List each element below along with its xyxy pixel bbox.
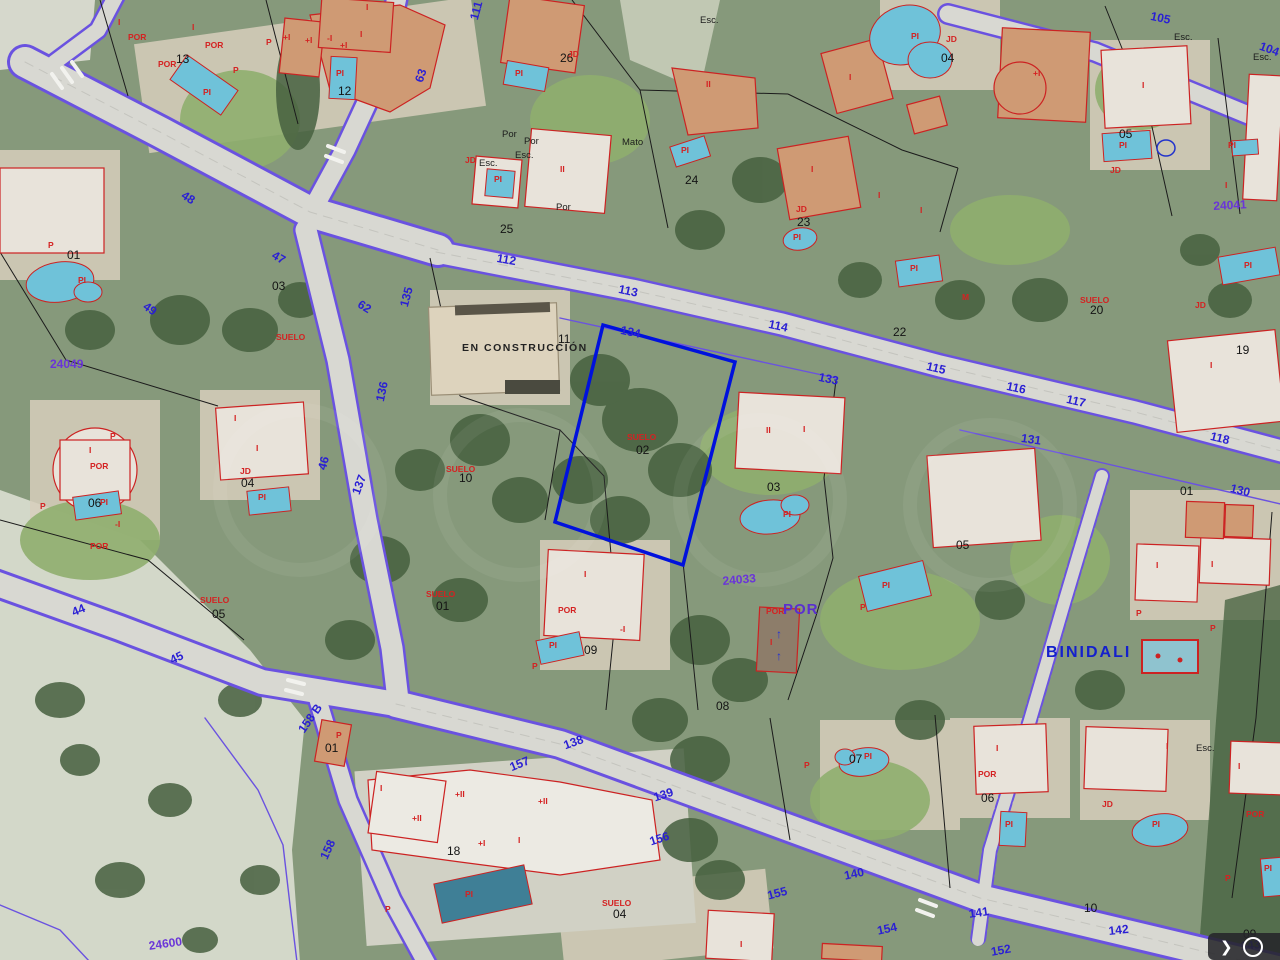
por-overlay-label: POR <box>783 602 819 617</box>
aerial-imagery <box>0 0 1280 960</box>
expand-panel-button[interactable]: ❯ <box>1220 938 1233 956</box>
binidali-pool <box>1142 640 1198 673</box>
place-name-label: BINIDALI <box>1046 645 1131 661</box>
map-viewport[interactable]: 4962484763111105104112113134114133115116… <box>0 0 1280 960</box>
clock-icon[interactable] <box>1243 937 1263 957</box>
construction-label: EN CONSTRUCCIÓN <box>462 343 588 354</box>
map-toolbar[interactable]: ❯ <box>1208 933 1280 960</box>
